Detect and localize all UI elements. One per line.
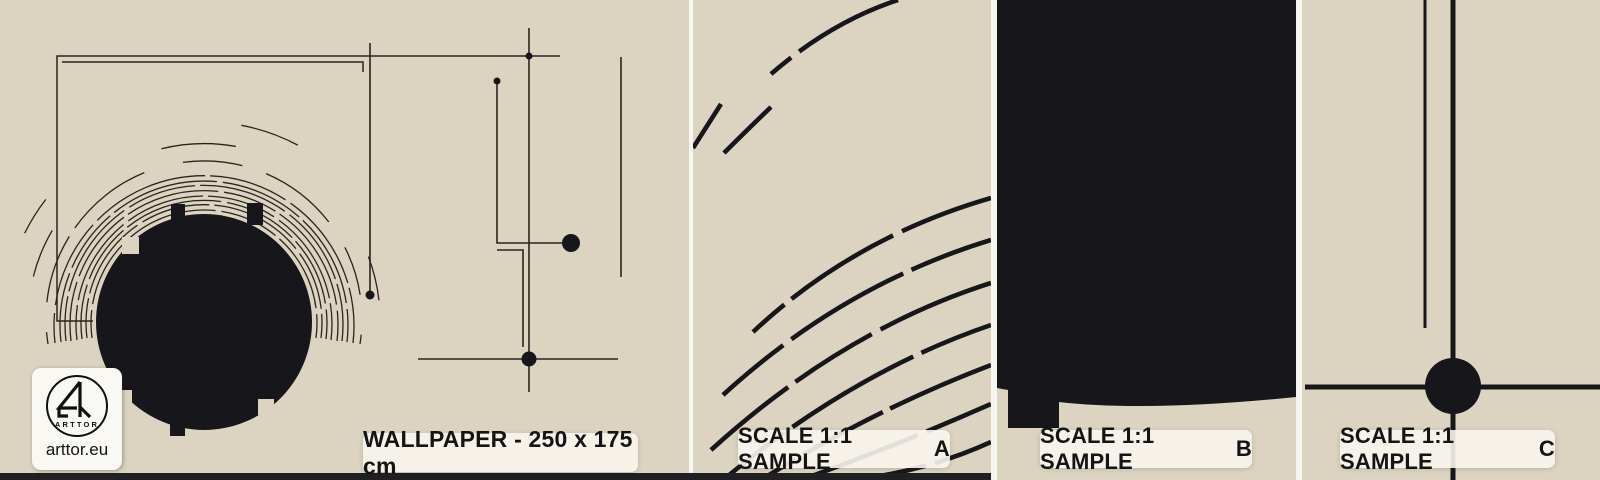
big-circle xyxy=(96,203,312,436)
wallpaper-size-label: WALLPAPER - 250 x 175 cm xyxy=(363,433,638,472)
sample-b-artwork xyxy=(997,0,1296,480)
wallpaper-panel: ARTTOR arttor.eu xyxy=(0,0,690,480)
sample-c-dot xyxy=(1425,358,1481,414)
sample-c-label-text: SCALE 1:1 SAMPLE xyxy=(1340,423,1530,475)
sample-b-black-shape xyxy=(997,0,1296,428)
panel-divider xyxy=(1296,0,1302,480)
sample-c-artwork xyxy=(1302,0,1600,480)
sample-c-label: SCALE 1:1 SAMPLE C xyxy=(1340,430,1555,468)
wallpaper-size-text: WALLPAPER - 250 x 175 cm xyxy=(363,426,638,480)
arttor-logo-icon: ARTTOR xyxy=(44,373,110,439)
arttor-logo-card: ARTTOR arttor.eu xyxy=(32,368,122,470)
website-text: arttor.eu xyxy=(46,440,108,460)
sample-b-panel xyxy=(997,0,1296,480)
sample-c-letter: C xyxy=(1539,436,1555,462)
sample-a-label: SCALE 1:1 SAMPLE A xyxy=(738,430,950,468)
logo-circle-text: ARTTOR xyxy=(55,420,99,429)
composition-dots xyxy=(366,53,581,367)
sample-a-arcs xyxy=(693,0,991,480)
panel-divider xyxy=(991,0,997,480)
sample-a-artwork xyxy=(693,0,991,480)
sample-b-letter: B xyxy=(1236,436,1252,462)
sample-a-panel xyxy=(693,0,991,480)
sample-b-label: SCALE 1:1 SAMPLE B xyxy=(1040,430,1252,468)
sample-a-letter: A xyxy=(934,436,950,462)
product-image: ARTTOR arttor.eu WALLPAPER - 250 x 175 c… xyxy=(0,0,1600,480)
sample-b-label-text: SCALE 1:1 SAMPLE xyxy=(1040,423,1227,475)
sample-c-panel xyxy=(1302,0,1600,480)
panel-divider xyxy=(689,0,693,480)
sample-a-label-text: SCALE 1:1 SAMPLE xyxy=(738,423,925,475)
